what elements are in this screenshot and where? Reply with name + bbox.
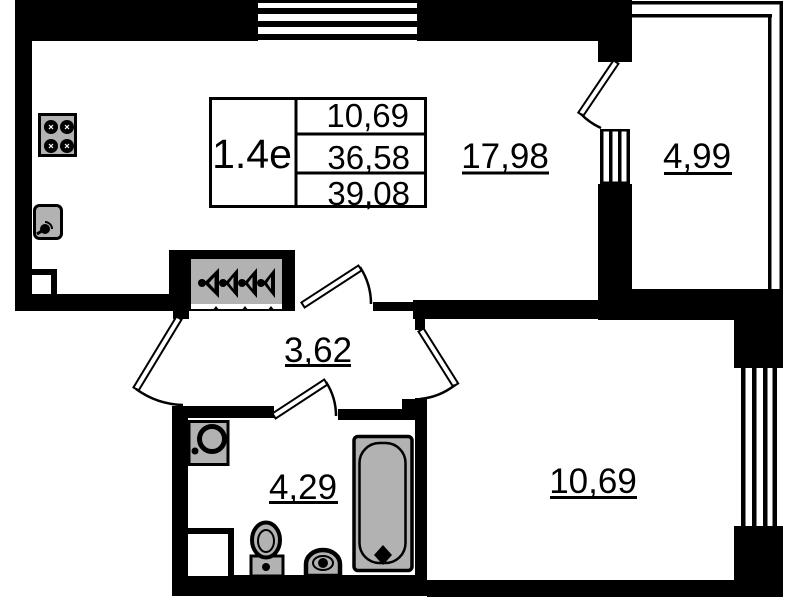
- svg-text:10,69: 10,69: [326, 97, 409, 134]
- svg-text:10,69: 10,69: [549, 462, 637, 501]
- svg-text:1.4e: 1.4e: [212, 131, 292, 177]
- svg-text:39,08: 39,08: [327, 175, 410, 212]
- svg-text:36,58: 36,58: [327, 139, 410, 176]
- svg-text:17,98: 17,98: [461, 137, 549, 176]
- svg-text:4,99: 4,99: [663, 137, 731, 176]
